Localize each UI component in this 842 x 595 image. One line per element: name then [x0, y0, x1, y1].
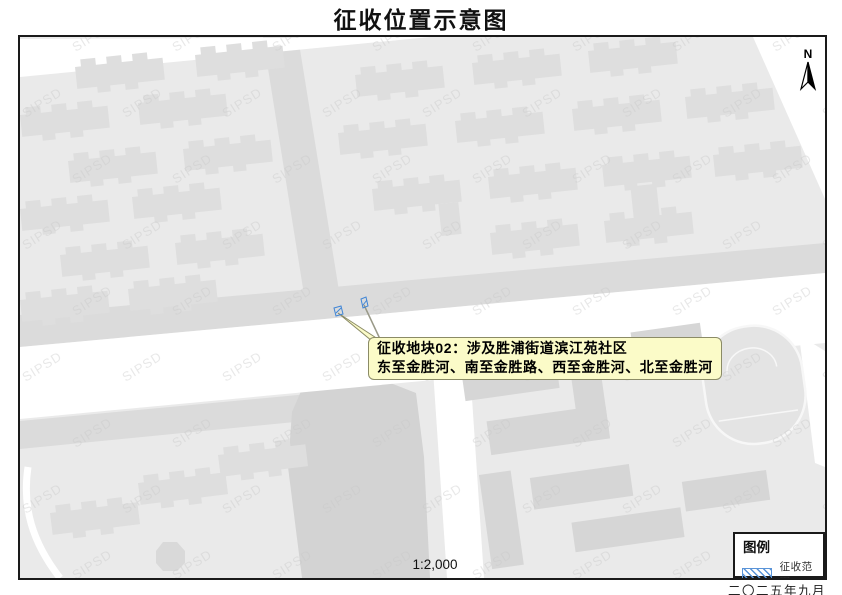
- legend-title: 图例: [743, 536, 823, 556]
- parcel-callout: 征收地块02：涉及胜浦街道滨江苑社区 东至金胜河、南至金胜路、西至金胜河、北至金…: [368, 337, 722, 380]
- parcel-callout-line1: 征收地块02：涉及胜浦街道滨江苑社区: [377, 339, 713, 358]
- parcel-callout-line2: 东至金胜河、南至金胜路、西至金胜河、北至金胜河: [377, 358, 713, 377]
- map-frame: SIPSDSIPSDSIPSDSIPSDSIPSDSIPSDSIPSDSIPSD…: [18, 35, 827, 580]
- legend-item-label: 征收范围: [780, 559, 823, 580]
- legend-item: 征收范围: [742, 559, 823, 580]
- north-arrow-label: N: [804, 47, 813, 61]
- date-text: 二〇二五年九月: [728, 580, 826, 595]
- acquisition-parcel-west: [334, 306, 343, 316]
- map-sheet: 征收位置示意图: [0, 0, 842, 595]
- page-title: 征收位置示意图: [0, 1, 842, 35]
- north-arrow: N: [788, 45, 827, 93]
- annotation-overlay: [20, 37, 825, 578]
- legend-box: 图例 征收范围: [733, 532, 825, 578]
- acquisition-range-swatch: [742, 568, 772, 581]
- scale-text: 1:2,000: [385, 557, 485, 572]
